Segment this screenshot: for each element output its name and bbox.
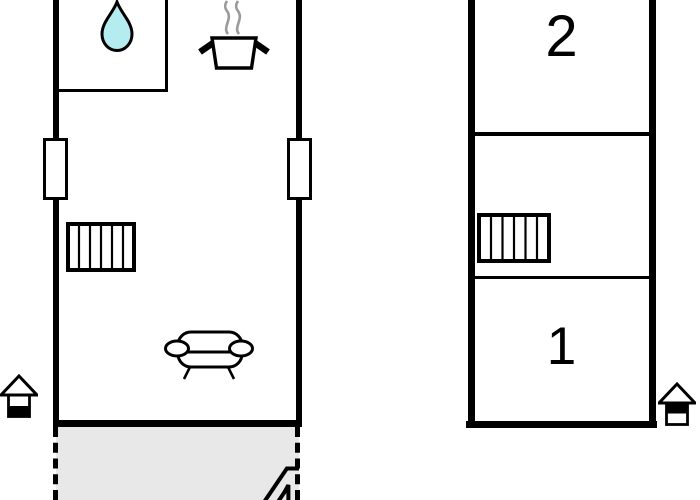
sofa-icon bbox=[163, 329, 255, 381]
room-number-2: 2 bbox=[470, 8, 653, 66]
steam-line-right-icon bbox=[236, 1, 240, 34]
stairs-icon-ground bbox=[66, 222, 136, 272]
water-drop-shape bbox=[102, 2, 132, 51]
room-number-1: 1 bbox=[470, 320, 653, 373]
pot-handle-left bbox=[200, 43, 213, 52]
upper-wall-bottom bbox=[466, 421, 657, 428]
upper-divider-top bbox=[471, 132, 653, 136]
house-roof bbox=[659, 384, 695, 403]
ground-wall-right bbox=[296, 0, 302, 427]
ground-wall-bottom bbox=[53, 420, 302, 427]
cooking-pot-icon bbox=[196, 0, 272, 72]
house-ground-level-fill bbox=[9, 406, 30, 417]
bathroom-partition-right bbox=[165, 0, 168, 91]
pot-body bbox=[212, 38, 256, 68]
house-ground-floor-icon bbox=[0, 374, 38, 420]
sofa-leg-right bbox=[228, 367, 234, 379]
house-upper-level-fill bbox=[667, 403, 688, 414]
bathroom-partition-bottom bbox=[56, 89, 168, 92]
upper-divider-bottom bbox=[471, 276, 653, 279]
house-roof bbox=[1, 376, 37, 395]
pot-handle-right bbox=[255, 43, 268, 52]
stairs-icon-upper bbox=[477, 213, 551, 263]
sofa-armrest-left bbox=[166, 341, 189, 356]
terrace-number-text: 4 bbox=[231, 433, 299, 500]
floor-plan-canvas: 4 2 1 bbox=[0, 0, 700, 500]
ground-wall-left bbox=[53, 0, 59, 427]
steam-line-left-icon bbox=[225, 1, 229, 34]
water-drop-icon bbox=[98, 0, 136, 55]
terrace-number: 4 bbox=[59, 427, 299, 500]
sofa-armrest-right bbox=[230, 341, 253, 356]
house-upper-floor-icon bbox=[658, 382, 696, 428]
window-marker-left bbox=[43, 138, 68, 200]
window-marker-right bbox=[287, 138, 312, 200]
terrace-dashed-border-left bbox=[53, 427, 58, 500]
sofa-leg-left bbox=[184, 367, 190, 379]
